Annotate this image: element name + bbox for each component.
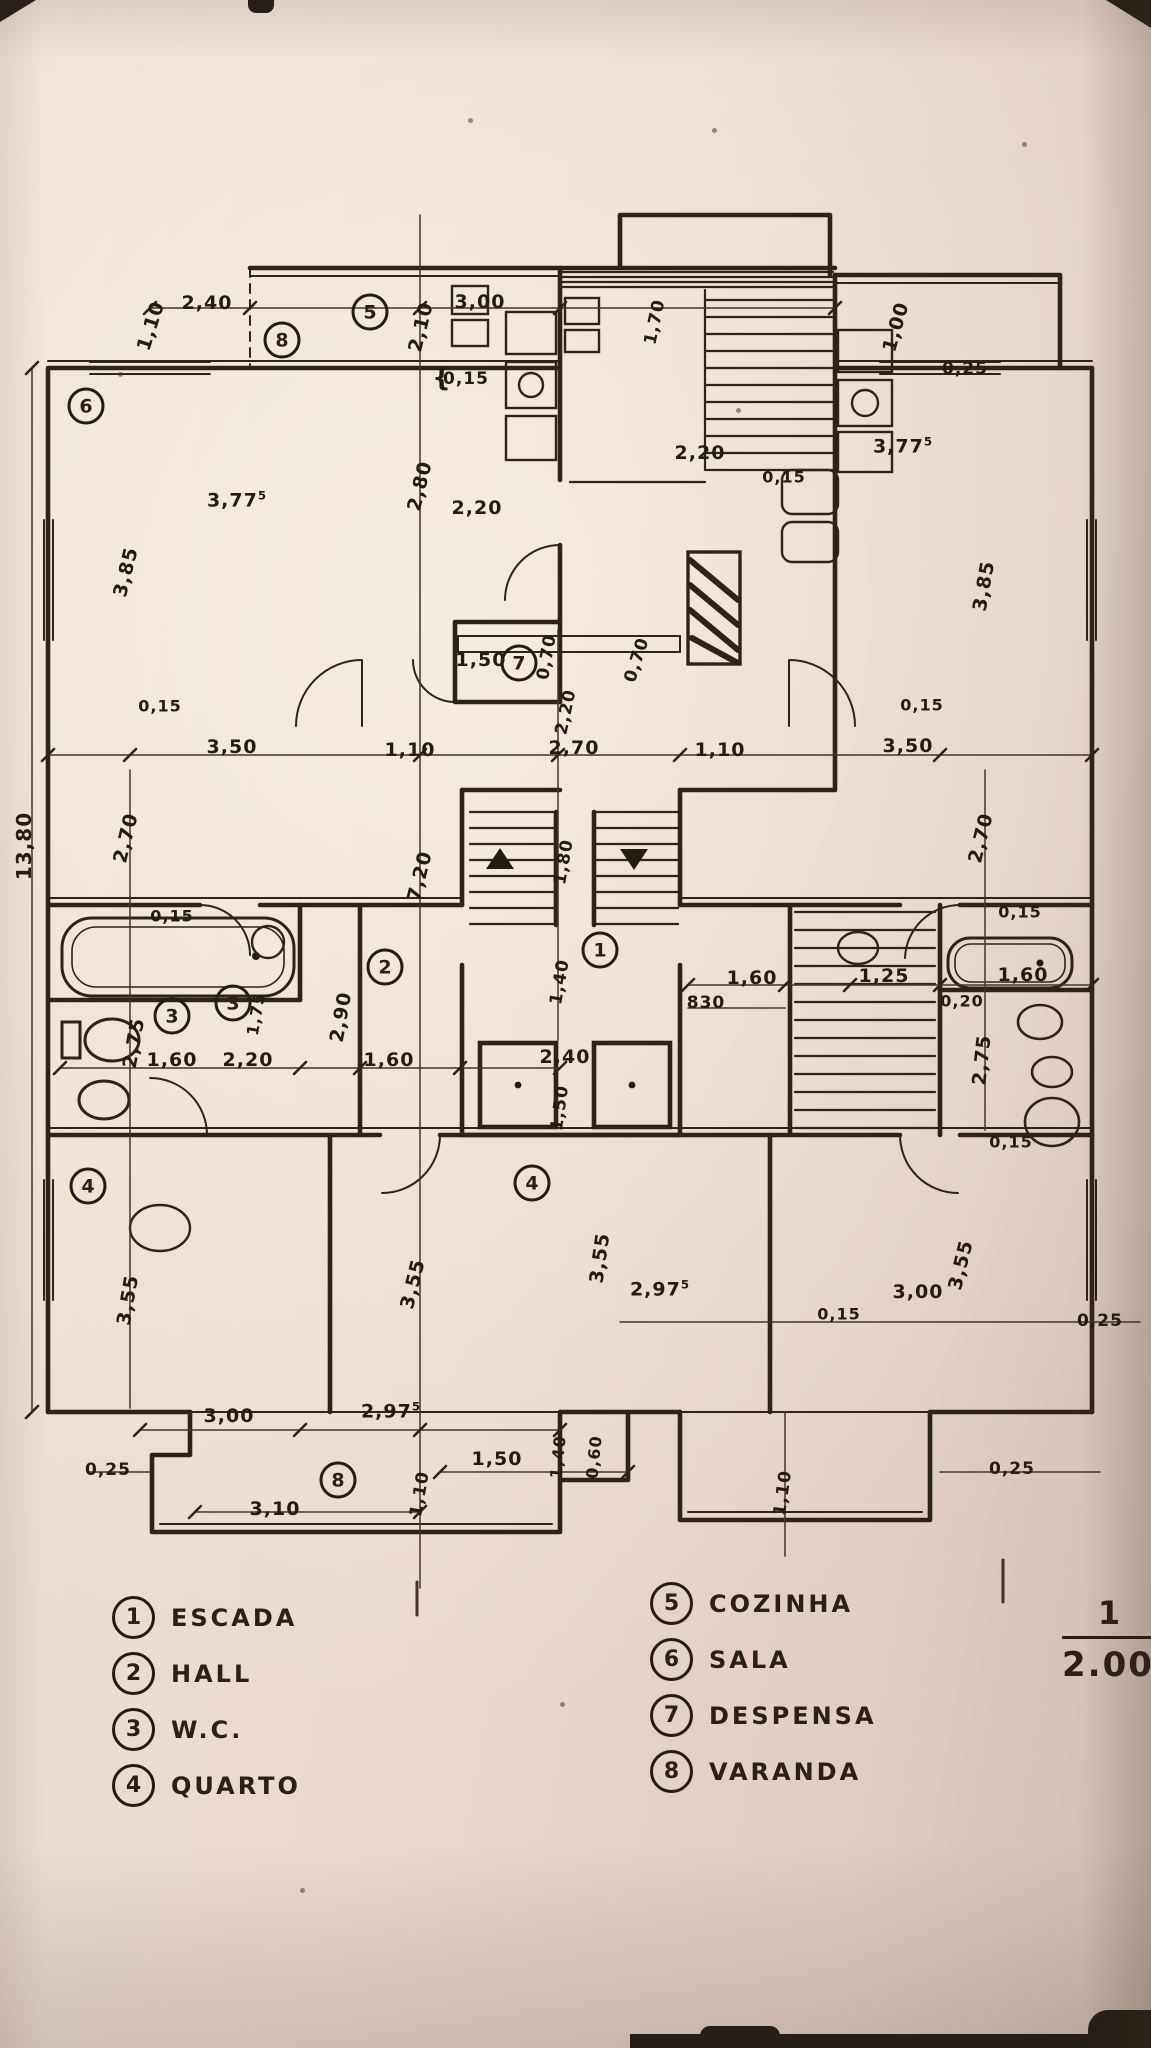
legend-label: SALA [709,1646,791,1674]
legend-item: 2HALL [112,1652,301,1695]
legend-number: 5 [650,1582,693,1625]
legend-label: W.C. [171,1716,243,1744]
legend-number: 6 [650,1638,693,1681]
legend-left: 1ESCADA2HALL3W.C.4QUARTO [112,1596,301,1807]
ink-speck [736,408,741,413]
legend-item: 1ESCADA [112,1596,301,1639]
photographed-floorplan-page: 1,102,403,002,101,701,000,25{0,152,203,7… [0,0,1151,2048]
ink-speck [118,372,123,377]
legend-item: 8VARANDA [650,1750,877,1793]
legend-label: COZINHA [709,1590,853,1618]
ink-speck [1022,142,1027,147]
legend-number: 3 [112,1708,155,1751]
legend-number: 7 [650,1694,693,1737]
scale-denominator: 2.000 [1062,1636,1151,1685]
legend-label: VARANDA [709,1758,861,1786]
legend-label: QUARTO [171,1772,301,1800]
legend-label: HALL [171,1660,252,1688]
legend-item: 5COZINHA [650,1582,877,1625]
legend-number: 2 [112,1652,155,1695]
ink-speck [806,1772,811,1777]
ink-speck [300,1888,305,1893]
legend-item: 7DESPENSA [650,1694,877,1737]
scale-fraction: 1 2.000 [1062,1594,1151,1685]
photo-edge-mark-top [248,0,274,13]
ink-speck [560,1702,565,1707]
scale-numerator: 1 [1062,1594,1151,1632]
legend-number: 4 [112,1764,155,1807]
photo-edge-notch-bottom [700,2026,780,2048]
legend-number: 8 [650,1750,693,1793]
legend-item: 6SALA [650,1638,877,1681]
legend-label: ESCADA [171,1604,297,1632]
legend-label: DESPENSA [709,1702,877,1730]
legend-item: 4QUARTO [112,1764,301,1807]
legend-item: 3W.C. [112,1708,301,1751]
photo-corner-blob-bottom-right [1088,2010,1151,2048]
ink-speck [712,128,717,133]
ink-speck [468,118,473,123]
legend-number: 1 [112,1596,155,1639]
legend-right: 5COZINHA6SALA7DESPENSA8VARANDA [650,1582,877,1793]
